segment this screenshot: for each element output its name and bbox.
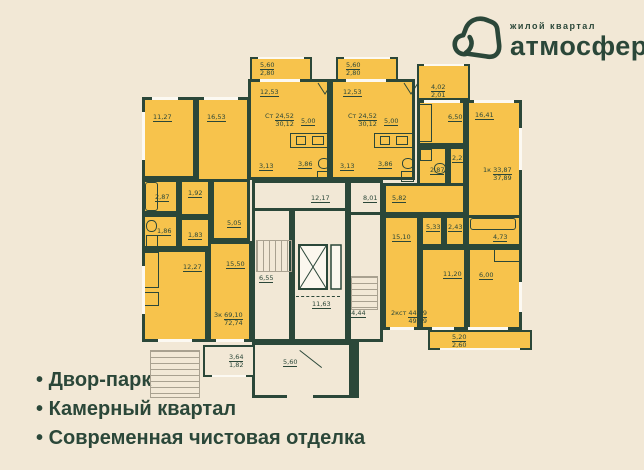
area-label: 5,00	[301, 118, 315, 126]
area-label: 2,43	[448, 224, 462, 232]
window	[258, 57, 304, 59]
apartment-type: Ст	[348, 113, 356, 128]
area-label: 2,87	[155, 194, 169, 202]
balcony-1k: 4,022,01	[417, 64, 470, 100]
apartment-label-2kst: 2кст 44,7949,99	[391, 310, 427, 325]
logo-brand: атмосфера	[510, 31, 644, 61]
balcony-2kst: 5,202,60	[428, 330, 532, 350]
balcony-studio-a: 5,602,80	[250, 57, 312, 81]
apartment-type: Ст	[265, 113, 273, 128]
washer	[401, 171, 414, 182]
area-label: 8,01	[363, 195, 377, 203]
room-corridor-5-05: 5,05	[211, 179, 250, 241]
balcony-door	[424, 100, 460, 103]
area-label: 2,27	[452, 155, 466, 163]
entrance-door-gap	[287, 395, 313, 398]
window	[519, 128, 522, 170]
stairs-right	[351, 276, 378, 310]
area-label: 3,86	[298, 161, 312, 169]
door-swing-icon	[317, 82, 333, 95]
window	[216, 339, 244, 342]
room-kitchen-11-20: 11,20	[420, 247, 467, 330]
area-label: 5,00	[384, 118, 398, 126]
area-label: 12,53	[260, 89, 279, 97]
sink	[380, 136, 390, 145]
feature-item: Двор-парк	[36, 366, 365, 395]
area-label: 3,13	[340, 163, 354, 171]
area-label: 12,27	[183, 264, 202, 272]
window	[424, 64, 464, 66]
apartment-label-3k: 3к 69,1072,74	[214, 312, 243, 327]
window	[474, 100, 514, 103]
room-hall-5-33: 5,33	[420, 215, 444, 247]
area-label: 5,82	[392, 195, 406, 203]
window	[158, 339, 192, 342]
window	[519, 282, 522, 312]
features-list: Двор-парк Камерный квартал Современная ч…	[36, 366, 365, 453]
stove	[396, 136, 408, 145]
corridor-8-01: 8,01	[348, 180, 383, 215]
toilet	[146, 220, 157, 232]
elevator-shaft	[298, 244, 328, 290]
apartment-type: 2кст	[391, 310, 406, 325]
balcony-door	[346, 79, 386, 82]
atmosfera-logo-icon	[452, 15, 502, 61]
room-hall-5-82: 5,82	[383, 183, 466, 215]
area-label: 5,05	[227, 220, 241, 228]
door-swing-icon	[403, 82, 419, 95]
room-bedroom-15-10: 15,10 2кст 44,7949,99	[383, 215, 420, 330]
window	[204, 97, 238, 100]
elevator-shaft-small	[330, 244, 342, 290]
area-label: 15,50	[226, 261, 245, 269]
stove	[312, 136, 324, 145]
area-label: 3,13	[259, 163, 273, 171]
toilet	[318, 158, 330, 169]
area-label: 6,50	[448, 114, 462, 122]
logo: жилой квартал атмосфера	[452, 15, 644, 61]
window	[142, 266, 145, 314]
washer	[420, 149, 432, 161]
corridor-12-17: 12,17	[252, 180, 348, 211]
window	[152, 97, 178, 100]
room-bedroom-11-27: 11,27	[142, 97, 196, 179]
area-label: 1,92	[188, 190, 202, 198]
area-label: 3,86	[378, 161, 392, 169]
kitchen-counter	[144, 252, 159, 288]
area-label: 12,53	[343, 89, 362, 97]
wall-stub	[352, 342, 359, 398]
fridge	[144, 292, 159, 306]
floorplan-page: жилой квартал атмосфера 11,27 16,53 2,87…	[0, 0, 644, 470]
window	[212, 375, 246, 377]
room-storage-1-83: 1,83	[179, 217, 211, 249]
balcony-area-label: 3,641,82	[229, 354, 243, 369]
bathtub	[470, 218, 516, 230]
area-label: 4,73	[493, 234, 507, 242]
logo-tagline: жилой квартал	[510, 21, 644, 31]
room-living-16-41: 16,41 1к 33,8737,89	[466, 100, 522, 221]
area-label: 6,55	[259, 275, 273, 283]
kitchen-counter	[419, 104, 432, 142]
window	[344, 57, 390, 59]
area-label: 5,60	[283, 359, 297, 367]
apartment-type: 1к	[483, 167, 491, 182]
room-hall-2-43: 2,43	[444, 215, 466, 247]
apartment-label-studio: Ст 24,5230,12	[348, 113, 377, 128]
room-living-15-50: 15,50 3к 69,1072,74	[208, 241, 252, 342]
window	[142, 112, 145, 160]
area-label: 15,10	[392, 234, 411, 242]
hall-dashed-line	[296, 296, 340, 297]
area-label: 11,20	[443, 271, 462, 279]
area-label: 11,27	[153, 114, 172, 122]
washer	[317, 171, 330, 182]
window	[390, 327, 414, 330]
area-label: 1,86	[157, 228, 171, 236]
entrance-stairs-exterior	[150, 350, 200, 398]
area-label: 6,00	[479, 272, 493, 280]
feature-item: Современная чистовая отделка	[36, 424, 365, 453]
area-label: 5,33	[426, 224, 440, 232]
area-label: 16,41	[475, 112, 494, 120]
balcony-door	[432, 327, 454, 330]
area-label: 2,87	[430, 167, 444, 175]
apartment-type: 3к	[214, 312, 222, 327]
room-hall-1-92: 1,92	[179, 179, 211, 217]
window	[468, 327, 508, 330]
feature-item: Камерный квартал	[36, 395, 365, 424]
balcony-area-label: 5,602,80	[346, 62, 360, 77]
stairs-left	[256, 240, 292, 272]
balcony-area-label: 5,602,80	[260, 62, 274, 77]
area-label: 16,53	[207, 114, 226, 122]
area-label: 1,83	[188, 232, 202, 240]
area-label: 11,63	[312, 301, 331, 309]
kitchen-counter	[494, 248, 520, 262]
sink	[296, 136, 306, 145]
area-label: 12,17	[311, 195, 330, 203]
balcony-area-label: 4,022,01	[431, 84, 445, 99]
stairwell-6-55: 6,55	[252, 208, 292, 342]
apartment-label-1k: 1к 33,8737,89	[483, 167, 512, 182]
washer	[146, 235, 158, 247]
balcony-studio-b: 5,602,80	[336, 57, 398, 81]
toilet	[402, 158, 414, 169]
area-label: 14,44	[347, 310, 366, 318]
apartment-label-studio: Ст 24,5230,12	[265, 113, 294, 128]
balcony-door	[260, 79, 300, 82]
balcony-area-label: 5,202,60	[452, 334, 466, 349]
